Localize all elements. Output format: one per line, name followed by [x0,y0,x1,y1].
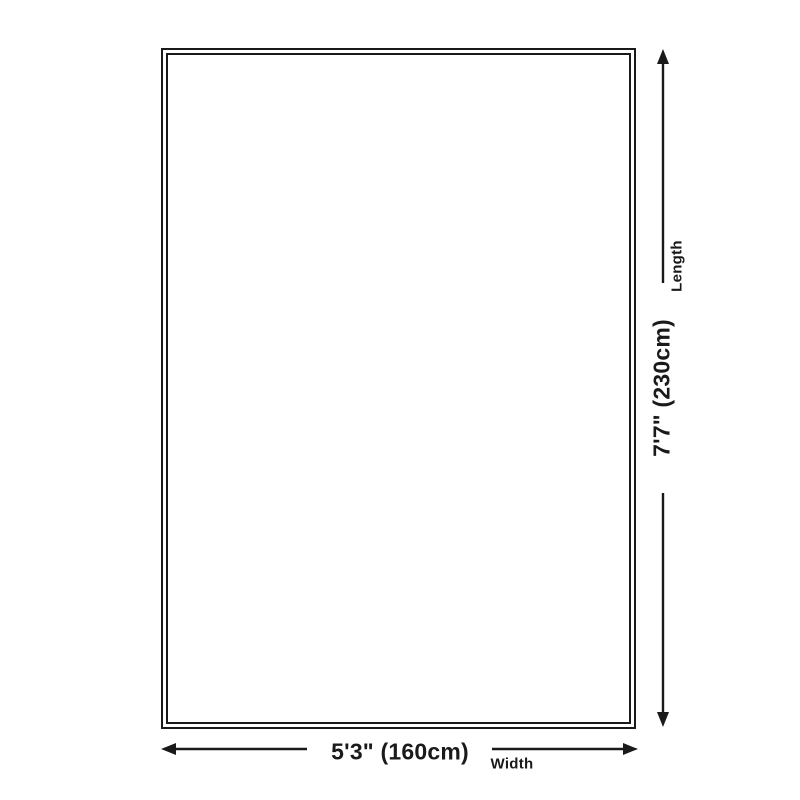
rug-outline-outer [161,48,636,729]
length-dimension-value: 7'7" (230cm) [651,319,674,457]
dimension-diagram: 5'3" (160cm) Width 7'7" (230cm) Length [0,0,800,800]
length-arrowhead-bottom-icon [657,712,669,727]
length-dimension-label: Length [670,240,685,292]
width-dimension-label: Width [490,757,533,772]
width-arrowhead-left-icon [161,743,176,755]
rug-outline-inner [166,53,631,724]
width-arrowhead-right-icon [623,743,638,755]
width-dimension-value: 5'3" (160cm) [331,741,469,764]
length-arrowhead-top-icon [657,49,669,64]
